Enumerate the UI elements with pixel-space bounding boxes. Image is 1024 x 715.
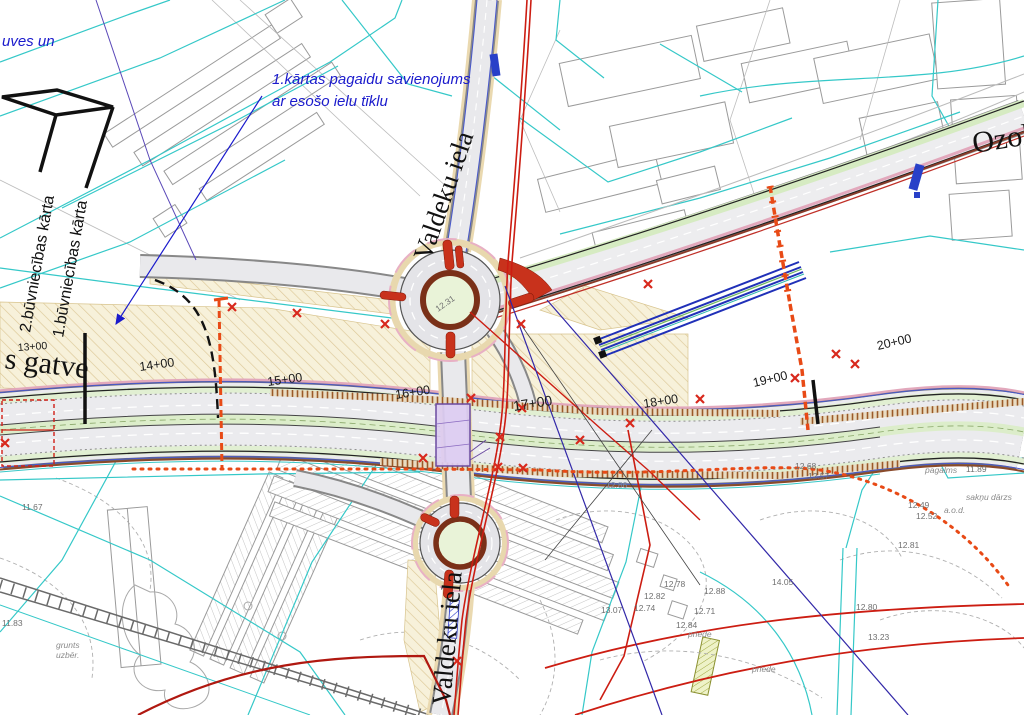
terrain-label-priede: priede [687, 629, 712, 639]
elevation-label: 11.67 [22, 502, 43, 512]
elevation-label: 12.86 [606, 480, 628, 490]
phase-boundary-symbol [2, 90, 113, 115]
terrain-label-aod: a.o.d. [944, 505, 965, 515]
temp-connection-note-line2: ar esošo ielu tīklu [272, 93, 389, 110]
terrain-label-saknu-darzs: sakņu dārzs [966, 492, 1013, 502]
elevation-label: 13.07 [601, 605, 623, 615]
elevation-label: 12.52 [916, 511, 938, 521]
building-mid-left [107, 507, 161, 668]
symbol-dot [914, 192, 920, 198]
terrain-label-pagalms: pagalms [924, 465, 958, 475]
elevation-label: 14.05 [772, 577, 794, 587]
elevation-label: 13.23 [868, 632, 890, 642]
elevation-label: 12.71 [694, 606, 716, 616]
terrain-label-priede: priede [751, 664, 776, 674]
road-construction-plan: uves un 1.kārtas pagaidu savienojums ar … [0, 0, 1024, 715]
elevation-label: 12.82 [644, 591, 666, 601]
elevation-label: 12.49 [908, 500, 930, 510]
elevation-label: 12.68 [795, 461, 817, 471]
station-19: 19+00 [752, 368, 789, 390]
temp-connection-note-line1: 1.kārtas pagaidu savienojums [272, 71, 471, 88]
elevation-label: 11.89 [966, 464, 987, 474]
station-13: 13+00 [17, 340, 47, 354]
elevation-label: 12.57 [808, 471, 830, 481]
elevation-label: 12.88 [704, 586, 726, 596]
terrain-label-uzber: uzbēr. [56, 650, 79, 660]
plan-drawing: uves un 1.kārtas pagaidu savienojums ar … [0, 0, 1024, 715]
hatched-plot [691, 637, 719, 695]
elevation-label: 12.78 [664, 579, 686, 589]
elevation-label: 12.81 [898, 540, 920, 550]
terrain-label-grunts: grunts [56, 640, 80, 650]
elevation-label: 11.83 [2, 618, 23, 628]
elevation-label: 12.74 [634, 603, 656, 613]
station-20: 20+00 [876, 331, 913, 353]
building-row-top-left [93, 0, 362, 237]
corner-note-fragment: uves un [2, 33, 55, 50]
elevation-label: 12.80 [856, 602, 878, 612]
